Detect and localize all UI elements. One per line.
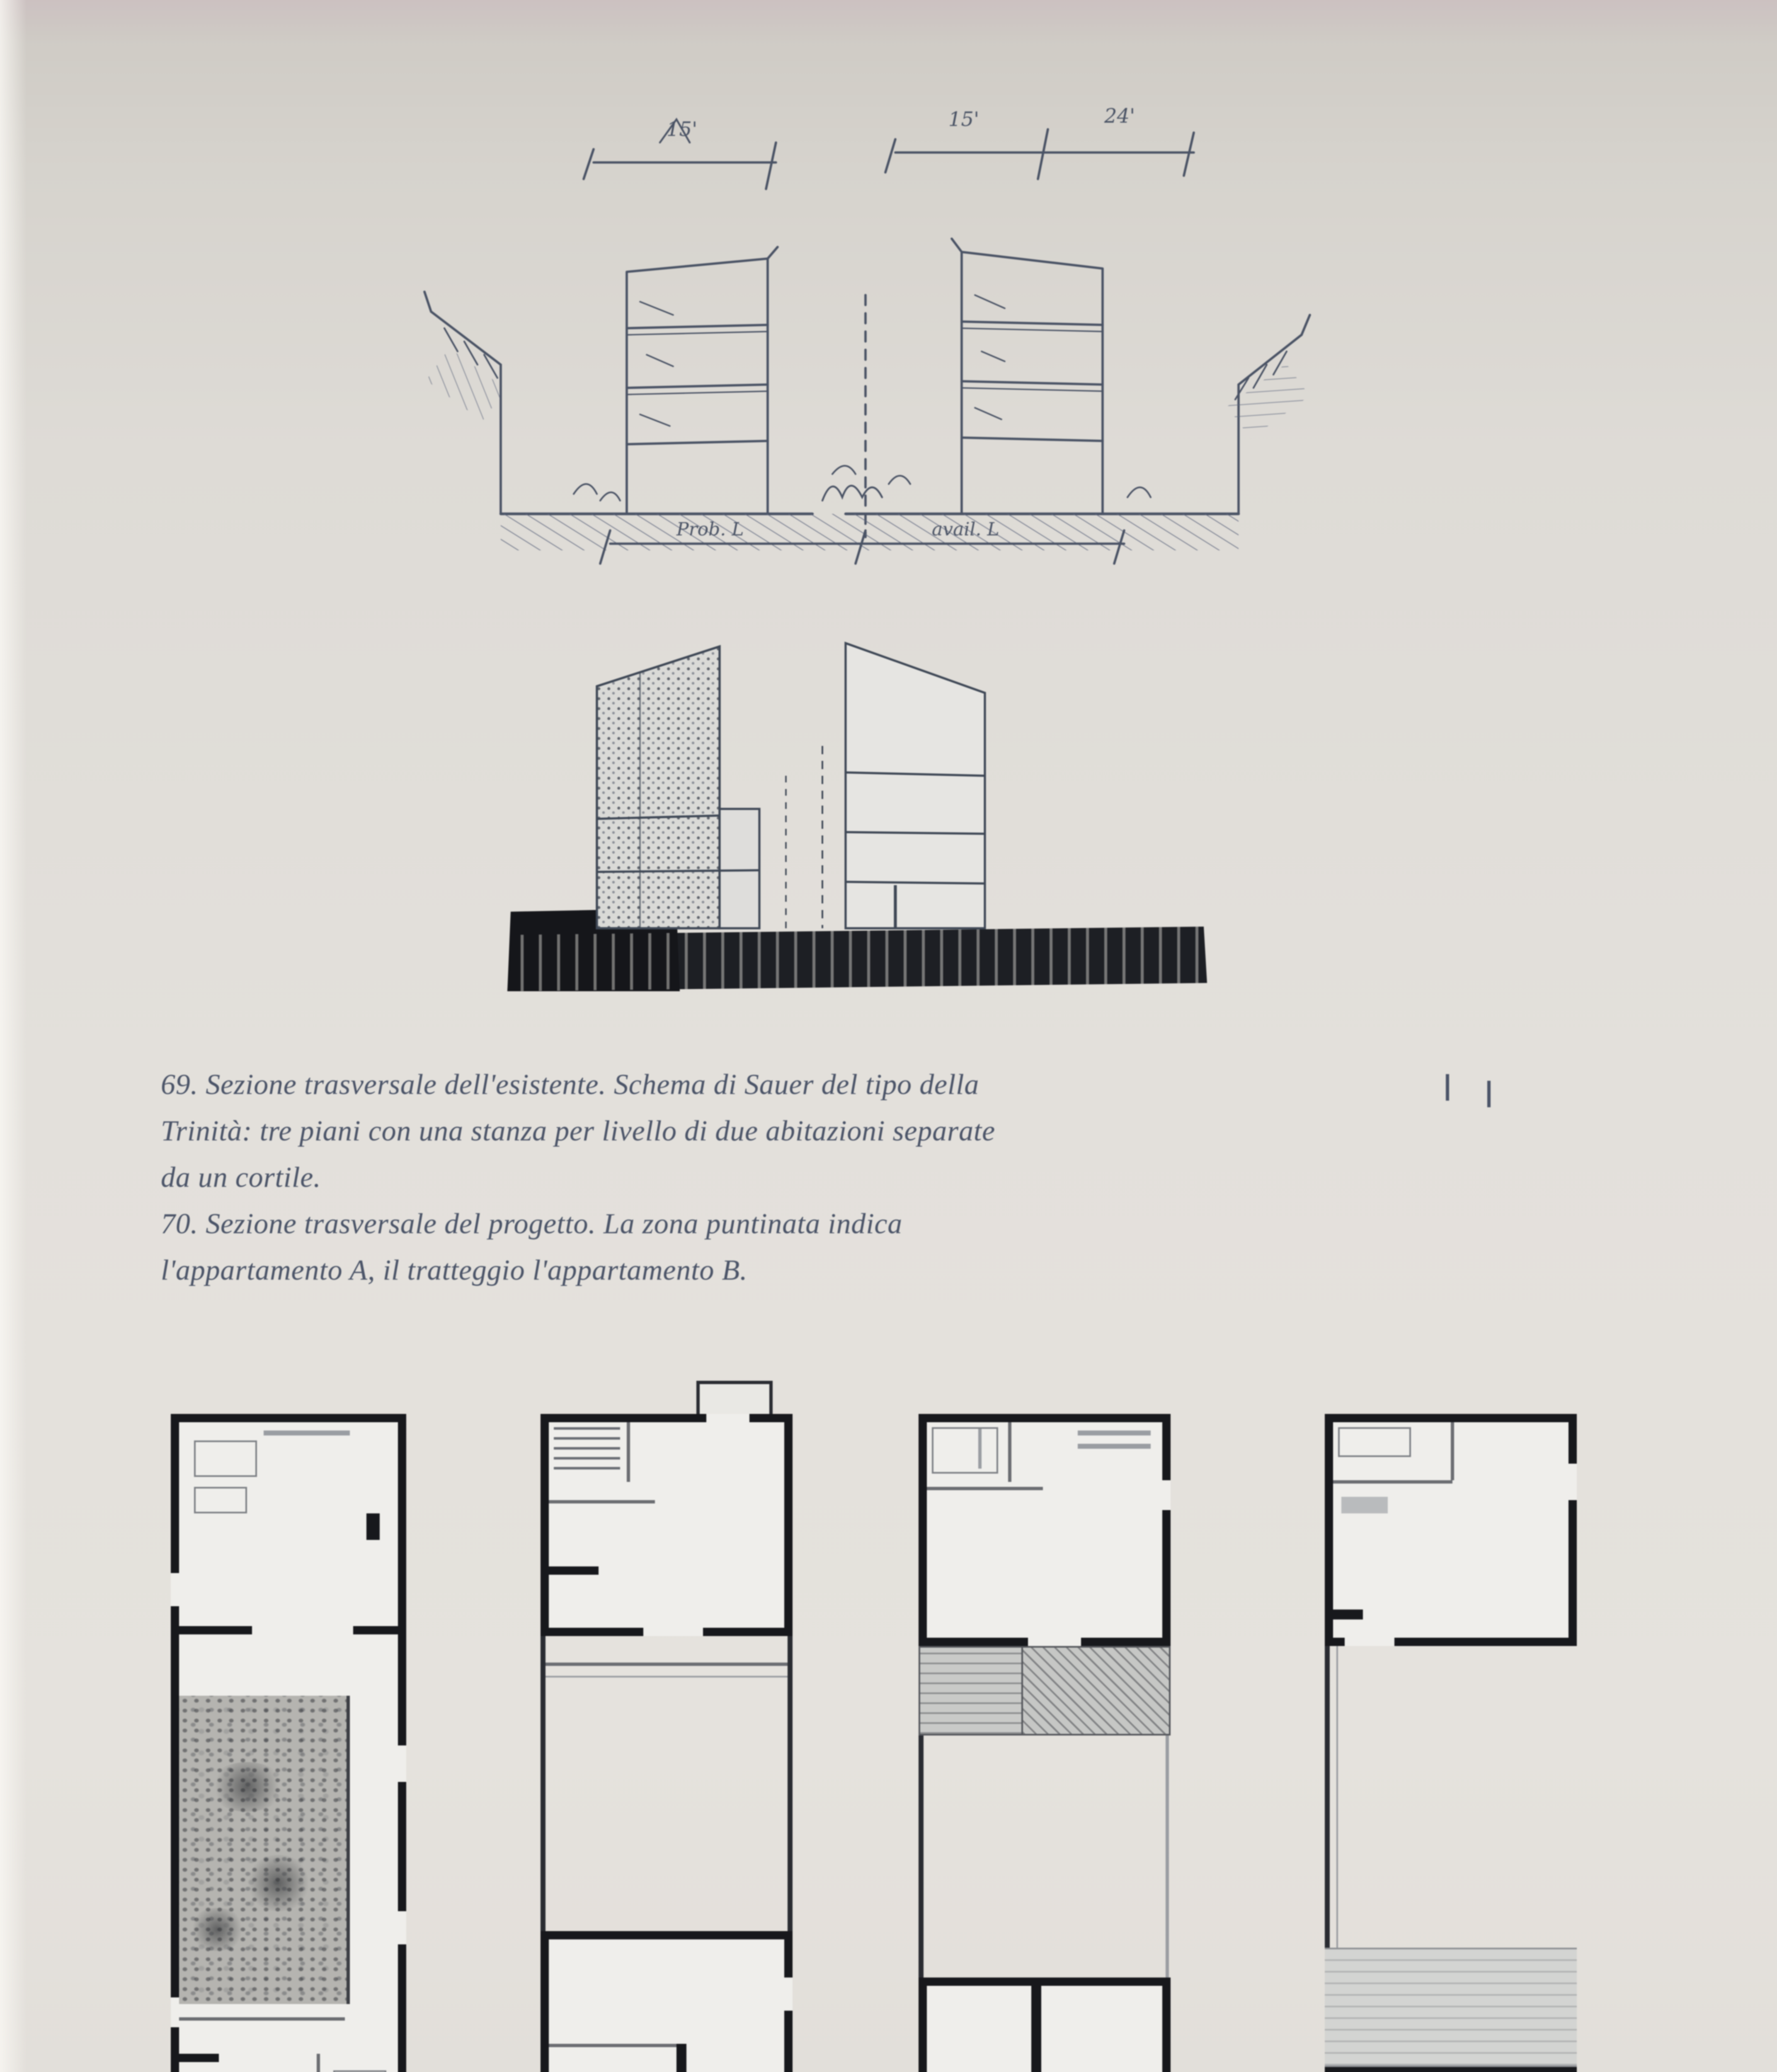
fig69-dim-bottom-right: avail. L [932, 519, 999, 540]
caption-fig69-70: 69. Sezione trasversale dell'esistente. … [161, 1061, 995, 1293]
fig69-dim-bottom-left: Prob. L [676, 519, 744, 540]
fig70-section-sketch-project [478, 617, 1257, 1011]
bridge-deck [919, 1646, 1025, 1736]
fig69-dim-left: 15' [667, 118, 697, 141]
top-edge-tint [0, 0, 1777, 43]
roof-terrace [1325, 1948, 1577, 2067]
margin-mark [1487, 1081, 1491, 1107]
fig69-section-sketch-existing: 15' 15' 24' Prob. L avail. L [415, 103, 1318, 567]
floor-plan-basement [171, 1414, 406, 2072]
caption-line: da un cortile. [161, 1154, 995, 1200]
caption-line: Trinità: tre piani con una stanza per li… [161, 1107, 995, 1154]
bed [932, 1427, 998, 1474]
caption-line: l'appartamento A, il tratteggio l'appart… [161, 1247, 995, 1293]
caption-line: 69. Sezione trasversale dell'esistente. … [161, 1061, 995, 1107]
floor-plan-ground [541, 1414, 793, 2072]
scanned-book-page: 15' 15' 24' Prob. L avail. L [0, 0, 1777, 2072]
floor-plan-first [919, 1414, 1171, 2072]
bridge-deck-hatched [1021, 1646, 1171, 1736]
page: 15' 15' 24' Prob. L avail. L [0, 0, 1777, 2072]
left-edge-highlight [0, 0, 27, 2072]
entry-stoop [696, 1381, 773, 1417]
floor-plan-second [1325, 1414, 1577, 2072]
fig69-dim-right-inner: 15' [948, 108, 979, 131]
fig69-dim-right-outer: 24' [1104, 104, 1135, 128]
margin-mark [1446, 1074, 1449, 1101]
caption-line: 70. Sezione trasversale del progetto. La… [161, 1200, 995, 1247]
garden-courtyard [179, 1696, 347, 2004]
desk [1338, 1427, 1411, 1457]
stairs [554, 1427, 620, 1474]
